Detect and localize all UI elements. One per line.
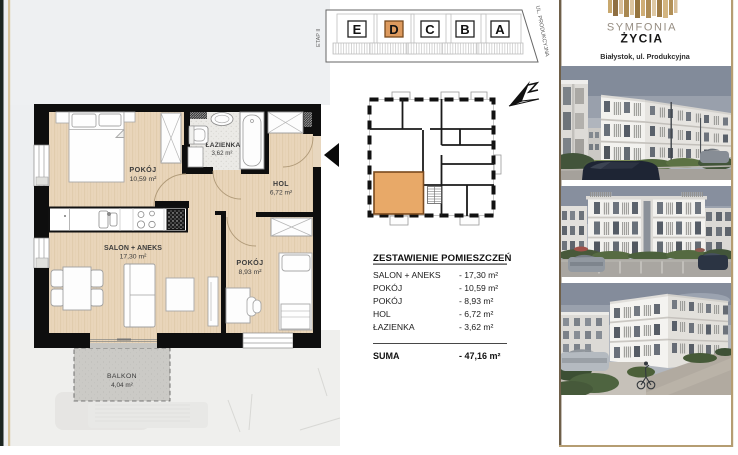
svg-text:SALON + ANEKS: SALON + ANEKS	[373, 270, 441, 280]
svg-text:Białystok, ul. Produkcyjna: Białystok, ul. Produkcyjna	[600, 52, 690, 61]
svg-text:ZESTAWIENIE POMIESZCZEŃ: ZESTAWIENIE POMIESZCZEŃ	[373, 252, 512, 264]
svg-text:- 6,72 m²: - 6,72 m²	[459, 309, 494, 319]
svg-text:- 10,59 m²: - 10,59 m²	[459, 283, 498, 293]
svg-text:- 3,62 m²: - 3,62 m²	[459, 322, 494, 332]
svg-text:SALON + ANEKS: SALON + ANEKS	[104, 245, 162, 252]
svg-text:BALKON: BALKON	[107, 373, 137, 380]
svg-text:A: A	[495, 22, 505, 37]
svg-text:HOL: HOL	[273, 181, 289, 188]
svg-text:POKÓJ: POKÓJ	[129, 165, 156, 174]
svg-text:- 47,16 m²: - 47,16 m²	[459, 351, 501, 361]
svg-text:- 8,93 m²: - 8,93 m²	[459, 296, 494, 306]
svg-text:B: B	[460, 22, 469, 37]
svg-text:10,59 m²: 10,59 m²	[130, 176, 158, 183]
svg-text:3,62 m²: 3,62 m²	[212, 150, 233, 157]
svg-text:E: E	[353, 22, 362, 37]
svg-text:- 17,30 m²: - 17,30 m²	[459, 270, 498, 280]
svg-text:POKÓJ: POKÓJ	[373, 283, 402, 293]
svg-text:D: D	[389, 22, 398, 37]
svg-text:C: C	[425, 22, 435, 37]
svg-text:HOL: HOL	[373, 309, 391, 319]
svg-text:8,93 m²: 8,93 m²	[238, 269, 262, 276]
svg-text:ŁAZIENKA: ŁAZIENKA	[373, 322, 415, 332]
svg-text:6,72 m²: 6,72 m²	[270, 190, 293, 197]
svg-text:17,30 m²: 17,30 m²	[120, 254, 148, 261]
svg-text:SUMA: SUMA	[373, 351, 400, 361]
svg-text:ŁAZIENKA: ŁAZIENKA	[206, 142, 241, 149]
svg-text:ETAP II: ETAP II	[316, 28, 322, 47]
svg-text:POKÓJ: POKÓJ	[373, 296, 402, 306]
svg-text:POKÓJ: POKÓJ	[236, 258, 263, 267]
svg-text:4,04 m²: 4,04 m²	[111, 382, 133, 389]
svg-text:ŻYCIA: ŻYCIA	[621, 31, 664, 46]
